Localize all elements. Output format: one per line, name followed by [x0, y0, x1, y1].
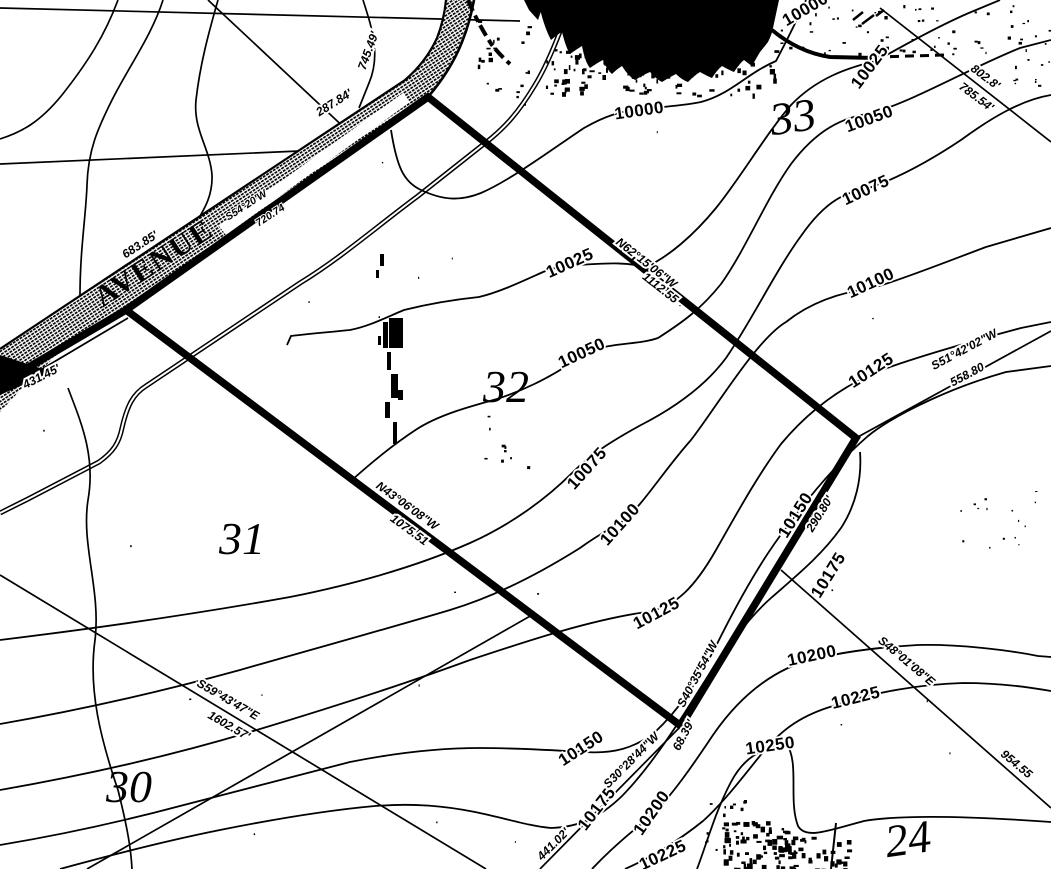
svg-text:30: 30 [105, 761, 152, 812]
svg-text:31: 31 [218, 513, 265, 564]
svg-text:24: 24 [882, 810, 935, 867]
svg-text:32: 32 [482, 361, 529, 412]
svg-text:33: 33 [766, 88, 820, 145]
